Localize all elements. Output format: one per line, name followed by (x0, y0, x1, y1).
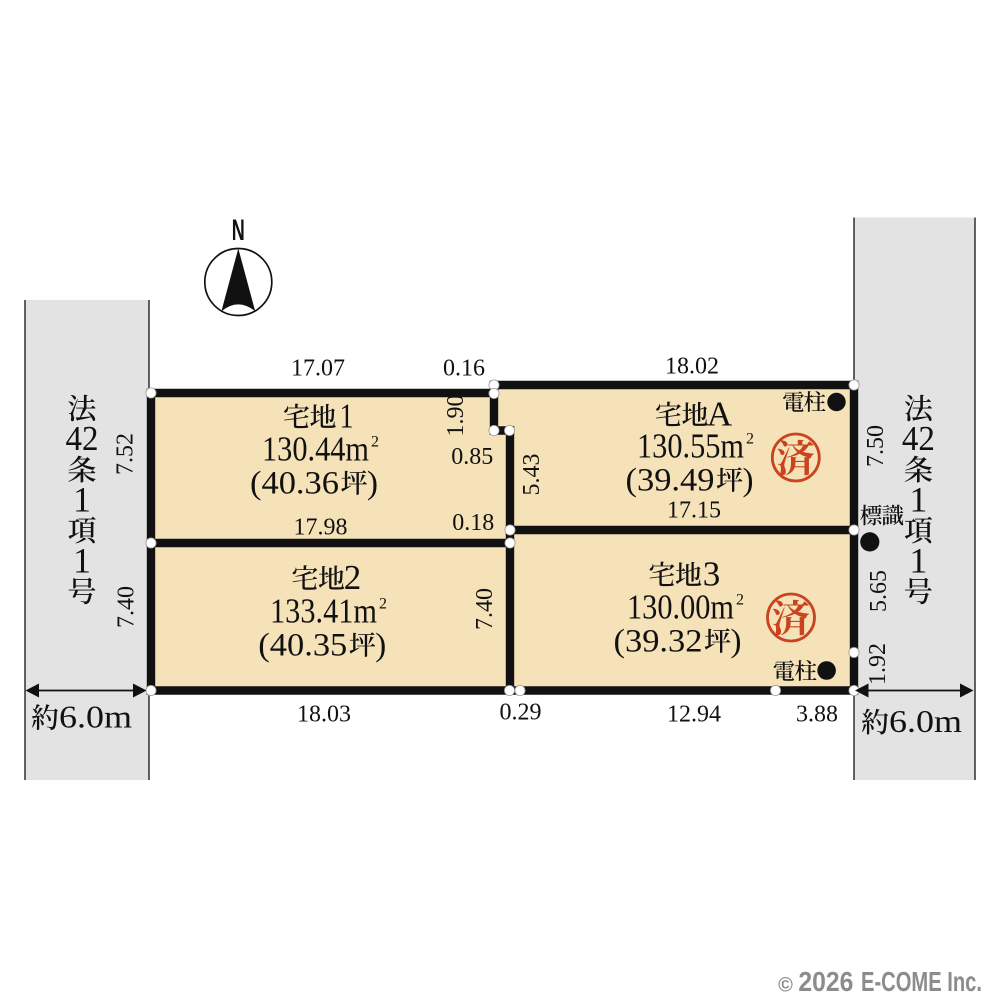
svg-text:2: 2 (344, 558, 362, 597)
svg-text:0.18: 0.18 (452, 510, 494, 536)
svg-text:17.07: 17.07 (291, 356, 345, 382)
svg-text:2: 2 (736, 592, 744, 609)
svg-text:133.41m: 133.41m (270, 593, 377, 631)
svg-text:7.52: 7.52 (112, 433, 138, 475)
svg-text:0.85: 0.85 (451, 444, 493, 470)
svg-text:5.65: 5.65 (866, 570, 892, 612)
svg-text:1: 1 (909, 479, 927, 519)
svg-text:42: 42 (902, 419, 935, 458)
svg-text:©: © (778, 975, 793, 997)
svg-text:18.02: 18.02 (665, 354, 719, 380)
svg-text:): ) (375, 628, 386, 664)
svg-text:(40.35: (40.35 (258, 628, 347, 664)
svg-text:1: 1 (73, 540, 91, 580)
svg-text:): ) (743, 463, 754, 499)
svg-text:E-COME Inc.: E-COME Inc. (861, 966, 982, 997)
svg-text:5.43: 5.43 (519, 454, 545, 496)
svg-text:N: N (232, 214, 245, 247)
svg-text:12.94: 12.94 (667, 702, 721, 728)
svg-text:130.44m: 130.44m (262, 431, 369, 469)
svg-text:2: 2 (379, 596, 387, 613)
svg-text:17.98: 17.98 (294, 515, 348, 541)
svg-text:17.15: 17.15 (667, 498, 721, 524)
svg-text:6.0m: 6.0m (59, 699, 132, 735)
svg-text:): ) (367, 466, 378, 502)
svg-text:): ) (731, 624, 742, 660)
svg-text:0.16: 0.16 (443, 356, 485, 382)
svg-text:2026: 2026 (798, 966, 853, 997)
svg-text:1.92: 1.92 (865, 643, 891, 685)
svg-text:0.29: 0.29 (500, 700, 542, 726)
svg-text:42: 42 (66, 419, 99, 458)
svg-text:2: 2 (371, 434, 379, 451)
svg-text:7.50: 7.50 (863, 425, 889, 467)
svg-text:1: 1 (909, 540, 927, 580)
svg-text:1: 1 (73, 479, 91, 519)
svg-text:7.40: 7.40 (472, 588, 498, 630)
svg-text:(40.36: (40.36 (250, 466, 339, 502)
svg-text:(39.32: (39.32 (614, 624, 703, 660)
svg-text:(39.49: (39.49 (626, 463, 715, 499)
svg-text:2: 2 (746, 431, 754, 448)
svg-text:130.55m: 130.55m (637, 428, 744, 466)
svg-text:130.00m: 130.00m (627, 589, 734, 627)
svg-text:6.0m: 6.0m (889, 703, 962, 739)
svg-text:3.88: 3.88 (796, 702, 838, 728)
svg-text:1.90: 1.90 (443, 395, 469, 437)
svg-text:18.03: 18.03 (297, 702, 351, 728)
svg-text:7.40: 7.40 (113, 586, 139, 628)
